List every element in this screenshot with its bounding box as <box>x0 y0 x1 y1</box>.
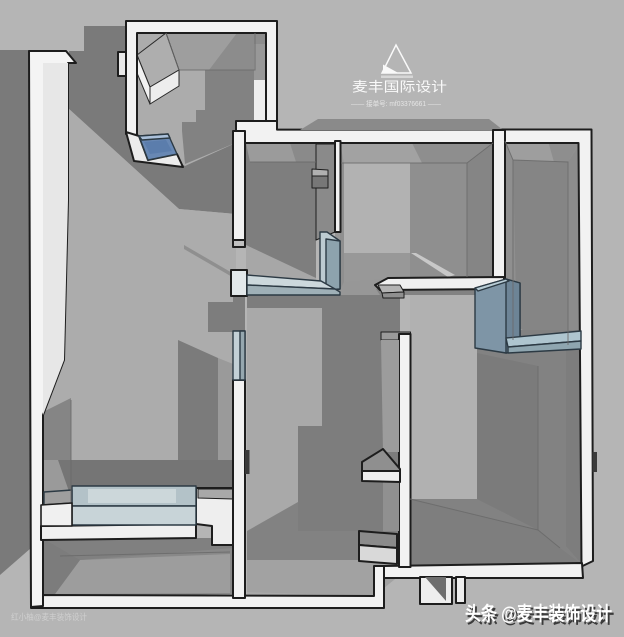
svg-text:红小柚@麦丰装饰设计: 红小柚@麦丰装饰设计 <box>11 612 87 622</box>
svg-text:麦丰国际设计: 麦丰国际设计 <box>352 80 447 95</box>
svg-text:头条 @麦丰装饰设计: 头条 @麦丰装饰设计 <box>465 602 612 625</box>
svg-text:—— 接单号: mf03376661 ——: —— 接单号: mf03376661 —— <box>351 99 441 108</box>
